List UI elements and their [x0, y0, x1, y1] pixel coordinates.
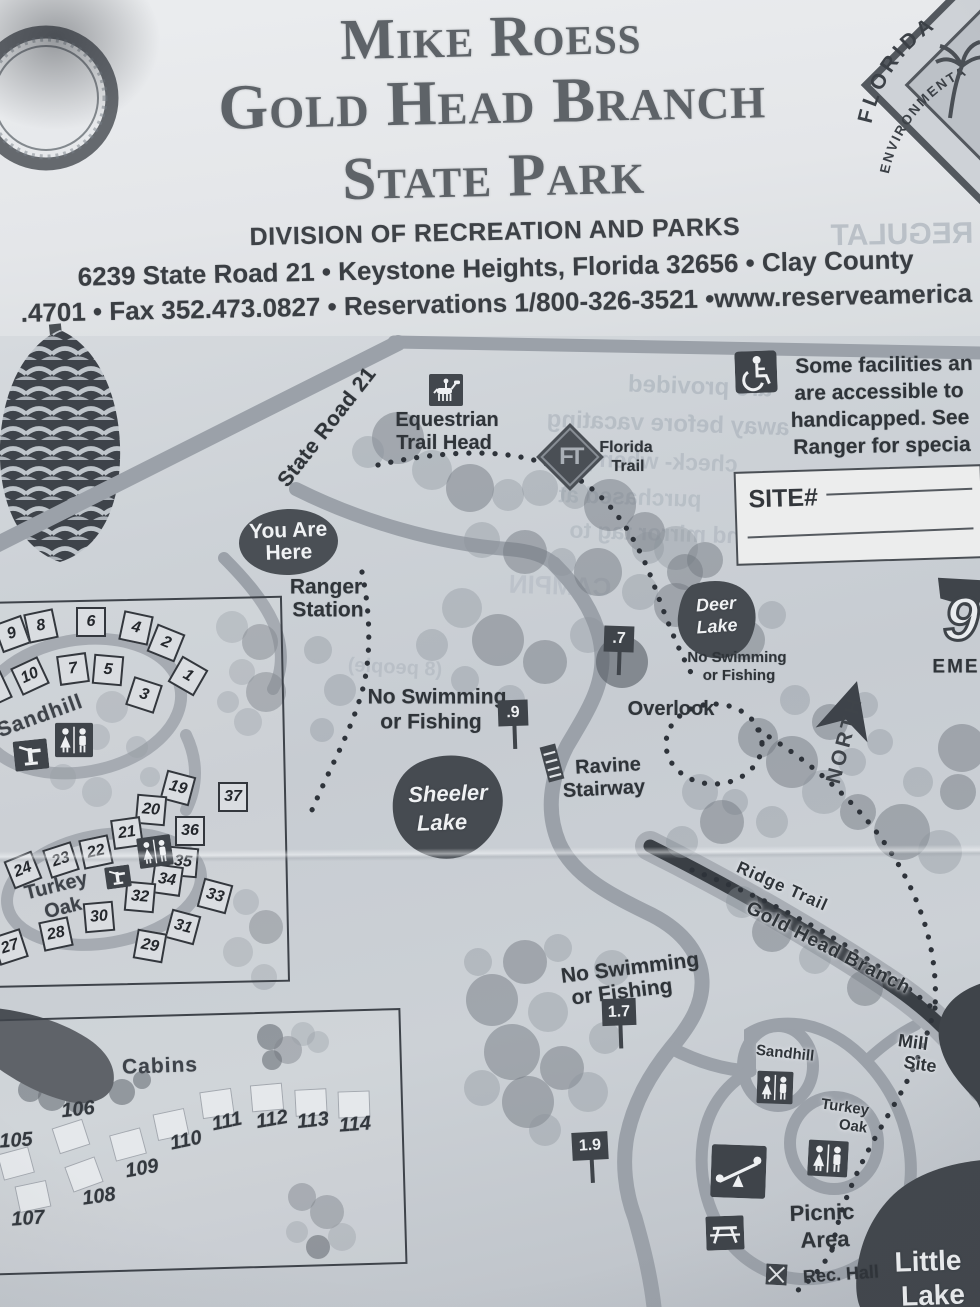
cabin-number: 106: [60, 1097, 96, 1123]
site-number-box: SITE#: [734, 464, 980, 566]
playground-icon: [710, 1144, 767, 1199]
emergency-number-9: 9: [942, 583, 980, 656]
deer-lake-no-swimming-line1: No Swimming: [687, 650, 786, 667]
ranger-station-label-line1: Ranger: [290, 575, 362, 598]
campsite-marker-sandhill: 8: [23, 608, 59, 644]
florida-trail-label-line1: Florida: [599, 439, 652, 457]
equestrian-label-line1: Equestrian: [395, 409, 498, 431]
you-are-here-line2: Here: [265, 541, 312, 565]
restroom-icon: [756, 1070, 793, 1104]
emergency-label: EME: [932, 658, 979, 679]
park-boundary-road: [394, 342, 980, 353]
little-lake-label-line1: Little: [894, 1245, 962, 1278]
picnic-table-icon: [705, 1215, 744, 1250]
campsite-marker-turkey-oak: 36: [175, 816, 205, 846]
restroom-icon: [136, 834, 174, 869]
ravine-stairway-label-line1: Ravine: [575, 753, 642, 778]
accessibility-note-line1: Some facilities an: [795, 352, 973, 378]
campsite-marker-sandhill: 6: [76, 607, 106, 637]
mile-marker-value: 1.7: [602, 998, 637, 1026]
mile-marker: 1.7: [602, 998, 637, 1026]
mile-marker: .9: [498, 699, 529, 726]
site-number-label: SITE#: [748, 483, 818, 514]
mile-marker-value: 1.9: [571, 1131, 608, 1161]
restroom-icon: [807, 1139, 849, 1178]
park-map-photo: REGULATare providedaway before vacatingc…: [0, 0, 980, 1307]
accessibility-note-line4: Ranger for specia: [793, 433, 971, 459]
sheeler-lake-label-line1: Sheeler: [408, 781, 488, 808]
equestrian-label-line2: Trail Head: [396, 432, 492, 454]
sheeler-no-swimming-line1: No Swimming: [368, 685, 507, 708]
equestrian-trailhead-icon: [429, 374, 463, 406]
campsite-marker-turkey-oak: 28: [38, 916, 74, 952]
ranger-station-label-line2: Station: [292, 598, 363, 621]
florida-trail-monogram: FT: [559, 443, 580, 471]
water-spigot-icon: [101, 864, 136, 890]
cabin-number: 114: [338, 1112, 371, 1137]
campsite-marker-turkey-oak: 22: [78, 834, 114, 870]
accessibility-note-line3: handicapped. See: [791, 406, 970, 432]
cabin-number: 107: [11, 1206, 46, 1231]
little-lake-label-line2: Lake: [901, 1279, 966, 1307]
mile-marker-value: .7: [604, 625, 635, 652]
restroom-icon: [55, 722, 93, 758]
you-are-here-line1: You Are: [249, 519, 328, 544]
mile-marker-value: .9: [498, 699, 529, 726]
accessibility-note-line2: are accessible to: [794, 379, 964, 405]
florida-trail-label-line2: Trail: [612, 458, 645, 476]
picnic-area-label-line1: Picnic: [789, 1200, 855, 1226]
mill-site-label-line1: Mill: [897, 1031, 929, 1055]
campsite-marker-sandhill: 4: [118, 610, 154, 646]
site-number-blank-line: [826, 488, 972, 496]
cabins-label: Cabins: [122, 1053, 199, 1079]
handicap-accessible-icon: [734, 350, 777, 393]
overlook-label: Overlook: [628, 698, 715, 720]
cabin-number: 108: [81, 1183, 117, 1210]
ravine-stairway-label-line2: Stairway: [562, 776, 645, 802]
deer-lake-label-line2: Lake: [696, 616, 738, 639]
mile-marker: .7: [604, 625, 635, 652]
right-edge-pond: [939, 983, 980, 1116]
water-spigot-icon: [13, 738, 50, 771]
campsite-marker-turkey-oak: 37: [218, 782, 248, 812]
mile-marker: 1.9: [571, 1131, 608, 1161]
deer-lake-no-swimming-line2: or Fishing: [703, 668, 776, 685]
cabin-number: 105: [0, 1128, 33, 1153]
sheeler-lake-label-line2: Lake: [417, 810, 468, 836]
picnic-area-label-line2: Area: [800, 1227, 850, 1253]
site-number-blank-line2: [748, 527, 974, 538]
deer-lake-label-line1: Deer: [695, 594, 736, 617]
campsite-marker-sandhill: 7: [56, 652, 90, 686]
sheeler-no-swimming-line2: or Fishing: [380, 710, 482, 733]
campsite-marker-turkey-oak: 29: [133, 929, 168, 964]
cabin-number: 113: [296, 1108, 330, 1134]
rec-hall-icon: [765, 1263, 787, 1285]
campsite-marker-turkey-oak: 30: [83, 901, 116, 934]
campsite-marker-sandhill: 5: [92, 654, 125, 687]
